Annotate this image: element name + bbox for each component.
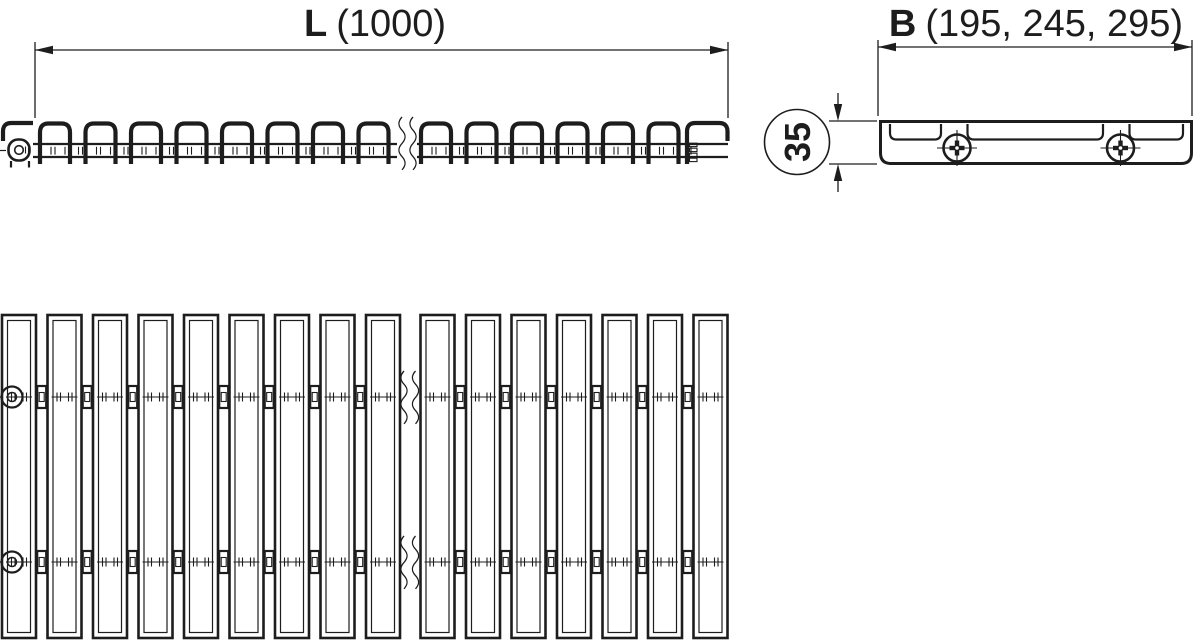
bar-connector (128, 551, 137, 573)
grate-bar (648, 315, 682, 638)
lock-plate (690, 153, 698, 156)
dimension-label-length: L(1000) (304, 3, 446, 45)
bar-connector-inner (176, 393, 181, 402)
grate-bar (139, 315, 173, 638)
bar-connector-inner (640, 393, 645, 402)
bar-connector (638, 551, 647, 573)
bar-connector-inner (39, 393, 44, 402)
grate-bar (557, 315, 591, 638)
break-line (399, 117, 405, 170)
lock-plate (690, 158, 698, 161)
bar-connector (547, 386, 556, 408)
grate-bar (366, 315, 400, 638)
side-view: L(1000) (0, 3, 728, 170)
plan-view (0, 315, 728, 638)
bar-connector-inner (221, 558, 226, 567)
bar-connector-inner (267, 558, 272, 567)
break-line (412, 371, 418, 424)
end-view: B(195, 245, 295) 35 (765, 3, 1193, 192)
side-view-profile (0, 117, 728, 170)
arrowhead-left-icon (878, 43, 896, 51)
bar-connector (37, 551, 46, 573)
grate-bar (230, 315, 264, 638)
dimension-label-height: 35 (777, 122, 818, 162)
height-dimension: 35 (765, 93, 878, 192)
screw-icon (1101, 130, 1141, 166)
break-line (401, 371, 407, 424)
bar-connector-inner (458, 558, 463, 567)
bar-connector (265, 386, 274, 408)
technical-drawing-grate: L(1000) B(195, 245, 295) 35 (0, 0, 1200, 640)
bar-connector (592, 386, 601, 408)
grate-bar (421, 315, 455, 638)
arrowhead-left-icon (35, 46, 53, 54)
break-line (412, 536, 418, 589)
width-values: (195, 245, 295) (925, 3, 1183, 45)
bar-connector (174, 551, 183, 573)
bar-connector (310, 386, 319, 408)
bar-connector-inner (503, 393, 508, 402)
arrowhead-right-icon (710, 46, 728, 54)
bar-connector (37, 386, 46, 408)
bar-connector-inner (549, 393, 554, 402)
grate-bar (93, 315, 127, 638)
bar-connector-inner (312, 558, 317, 567)
screw-icon (15, 146, 24, 155)
bar-connector (592, 551, 601, 573)
top-channel (968, 124, 1104, 140)
bar-connector (456, 386, 465, 408)
bar-connector-inner (312, 393, 317, 402)
bar-connector (683, 386, 692, 408)
bar-connector (683, 551, 692, 573)
bar-connector-inner (39, 558, 44, 567)
bar-connector-inner (130, 558, 135, 567)
bar-connector-inner (594, 393, 599, 402)
bar-connector (501, 386, 510, 408)
lock-capsule (9, 140, 30, 161)
bar-connector-inner (685, 393, 690, 402)
bar-connector (547, 551, 556, 573)
width-symbol: B (889, 3, 916, 45)
dimension-label-width: B(195, 245, 295) (889, 3, 1183, 45)
bar-connector-inner (85, 393, 90, 402)
grate-bar (466, 315, 500, 638)
grate-bar (2, 315, 36, 638)
bar-connector (83, 386, 92, 408)
bar-connector-inner (176, 558, 181, 567)
arrowhead-up-icon (834, 164, 842, 181)
grate-bar (603, 315, 637, 638)
bar-connector (310, 551, 319, 573)
break-line (410, 117, 416, 170)
bar-connector-inner (549, 558, 554, 567)
screw-icon (937, 130, 977, 166)
top-channel (1130, 124, 1184, 140)
section-outline (881, 122, 1192, 164)
bar-connector (638, 386, 647, 408)
bar-connector-inner (130, 393, 135, 402)
bar-connector-inner (503, 558, 508, 567)
grate-bar (275, 315, 309, 638)
bar-connector (501, 551, 510, 573)
bar-connector-inner (458, 393, 463, 402)
bar-connector (456, 551, 465, 573)
bar-connector (219, 551, 228, 573)
end-view-section (881, 122, 1192, 167)
bar-connector-inner (358, 558, 363, 567)
bar-connector (265, 551, 274, 573)
bar-connector (356, 551, 365, 573)
bar-connector (128, 386, 137, 408)
length-values: (1000) (336, 3, 446, 45)
grate-bar (321, 315, 355, 638)
bar-connector (174, 386, 183, 408)
bar-connector-inner (267, 393, 272, 402)
arrowhead-down-icon (834, 104, 842, 121)
bar-connector-inner (85, 558, 90, 567)
bar-connector (83, 551, 92, 573)
length-symbol: L (304, 3, 327, 45)
width-dimension: B(195, 245, 295) (878, 3, 1192, 116)
bar-connector-inner (358, 393, 363, 402)
bar-connector-inner (685, 558, 690, 567)
top-channel (890, 124, 941, 140)
grate-bar (184, 315, 218, 638)
bar-connector (356, 386, 365, 408)
bar-connector-inner (221, 393, 226, 402)
bar-connector (219, 386, 228, 408)
length-dimension: L(1000) (35, 3, 728, 118)
grate-bar (694, 315, 728, 638)
grate-bar (512, 315, 546, 638)
break-line (401, 536, 407, 589)
grate-bar (48, 315, 82, 638)
bar-connector-inner (640, 558, 645, 567)
bar-connector-inner (594, 558, 599, 567)
